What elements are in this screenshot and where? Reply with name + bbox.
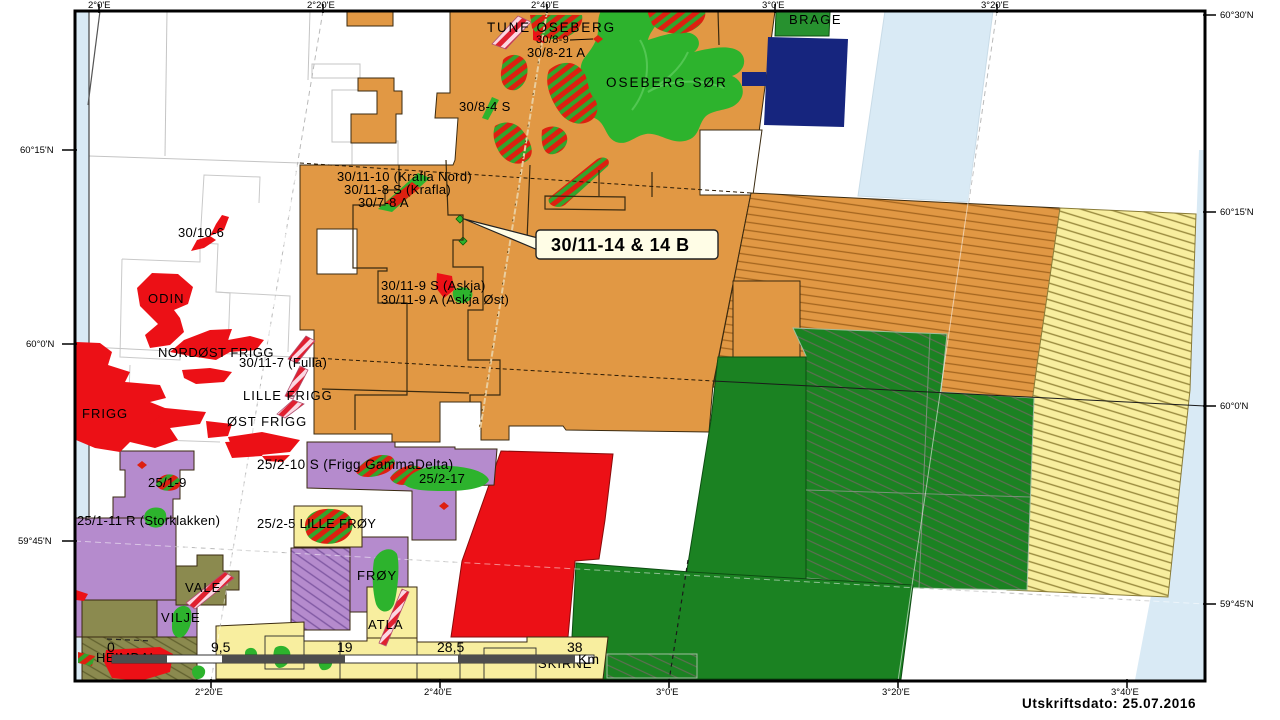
svg-text:19: 19 <box>337 639 353 655</box>
svg-text:30/11-9 A (Askja Øst): 30/11-9 A (Askja Øst) <box>381 292 509 307</box>
svg-text:2°40'E: 2°40'E <box>424 687 452 698</box>
svg-text:60°30'N: 60°30'N <box>1220 10 1254 21</box>
svg-text:2°40'E: 2°40'E <box>531 0 559 11</box>
svg-text:3°0'E: 3°0'E <box>656 687 679 698</box>
svg-text:25/1-9: 25/1-9 <box>148 475 187 490</box>
svg-text:28,5: 28,5 <box>437 639 464 655</box>
svg-text:3°0'E: 3°0'E <box>762 0 785 11</box>
svg-text:60°0'N: 60°0'N <box>26 339 54 350</box>
svg-text:Km: Km <box>578 651 599 667</box>
svg-text:30/11-7 (Fulla): 30/11-7 (Fulla) <box>239 355 327 370</box>
svg-text:30/11-14 & 14 B: 30/11-14 & 14 B <box>551 235 690 255</box>
svg-text:59°45'N: 59°45'N <box>1220 599 1254 610</box>
svg-text:30/7-8 A: 30/7-8 A <box>358 195 409 210</box>
svg-text:30/11-9 S (Askja): 30/11-9 S (Askja) <box>381 278 486 293</box>
svg-text:BRAGE: BRAGE <box>789 12 842 27</box>
svg-text:ODIN: ODIN <box>148 291 185 306</box>
svg-text:0: 0 <box>107 639 115 655</box>
svg-text:30/10-6: 30/10-6 <box>178 225 224 240</box>
svg-text:30/8-21 A: 30/8-21 A <box>527 45 585 60</box>
svg-text:3°20'E: 3°20'E <box>882 687 910 698</box>
svg-text:59°45'N: 59°45'N <box>18 536 52 547</box>
svg-text:ATLA: ATLA <box>368 617 404 632</box>
svg-text:TUNE OSEBERG: TUNE OSEBERG <box>487 20 616 35</box>
svg-text:60°15'N: 60°15'N <box>1220 207 1254 218</box>
svg-text:2°20'E: 2°20'E <box>307 0 335 11</box>
svg-text:25/2-10 S (Frigg GammaDelta): 25/2-10 S (Frigg GammaDelta) <box>257 457 454 472</box>
svg-text:60°0'N: 60°0'N <box>1220 401 1248 412</box>
svg-text:Utskriftsdato: 25.07.2016: Utskriftsdato: 25.07.2016 <box>1022 696 1196 711</box>
svg-text:25/2-17: 25/2-17 <box>419 471 465 486</box>
svg-text:OSEBERG SØR: OSEBERG SØR <box>606 75 728 90</box>
svg-text:60°15'N: 60°15'N <box>20 145 54 156</box>
svg-text:25/1-11 R (Storklakken): 25/1-11 R (Storklakken) <box>77 513 220 528</box>
svg-text:FRØY: FRØY <box>357 568 397 583</box>
svg-text:VALE: VALE <box>185 580 221 595</box>
svg-text:3°20'E: 3°20'E <box>981 0 1009 11</box>
svg-text:ØST FRIGG: ØST FRIGG <box>227 414 307 429</box>
svg-text:30/8-4 S: 30/8-4 S <box>459 99 511 114</box>
svg-text:2°0'E: 2°0'E <box>88 0 111 11</box>
svg-text:2°20'E: 2°20'E <box>195 687 223 698</box>
svg-text:VILJE: VILJE <box>161 610 201 625</box>
svg-text:9,5: 9,5 <box>211 639 231 655</box>
svg-text:25/2-5 LILLE FRØY: 25/2-5 LILLE FRØY <box>257 516 376 531</box>
svg-text:LILLE FRIGG: LILLE FRIGG <box>243 388 333 403</box>
svg-text:FRIGG: FRIGG <box>82 406 128 421</box>
